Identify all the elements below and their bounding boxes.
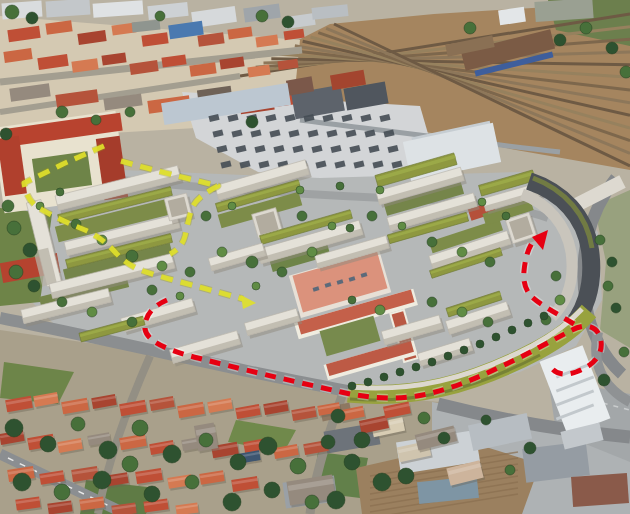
tree: [157, 261, 167, 271]
tree: [57, 297, 67, 307]
tree: [290, 458, 306, 474]
tree: [380, 373, 388, 381]
tree: [223, 493, 241, 511]
tree: [348, 382, 356, 390]
tree: [185, 267, 195, 277]
tree: [427, 297, 437, 307]
tree: [336, 182, 344, 190]
tree: [155, 11, 165, 21]
tree: [7, 221, 21, 235]
tree: [163, 445, 181, 463]
tree: [478, 198, 486, 206]
tree: [122, 456, 138, 472]
tree: [185, 475, 199, 489]
tree: [364, 378, 372, 386]
tree: [176, 292, 184, 300]
tree: [505, 465, 515, 475]
tree: [256, 10, 268, 22]
tree: [348, 296, 356, 304]
tree: [2, 200, 14, 212]
tree: [0, 128, 12, 140]
tree: [508, 326, 516, 334]
tree: [264, 482, 280, 498]
tree: [259, 437, 277, 455]
tree: [87, 307, 97, 317]
tree: [595, 235, 605, 245]
tree: [307, 247, 317, 257]
tree: [427, 237, 437, 247]
screenshot-root: [0, 0, 630, 514]
tree: [375, 305, 385, 315]
tree: [331, 409, 345, 423]
tree: [438, 432, 450, 444]
tree: [297, 211, 307, 221]
tree: [23, 243, 37, 257]
tree: [217, 247, 227, 257]
tree: [502, 212, 510, 220]
tree: [481, 415, 491, 425]
tree: [71, 417, 85, 431]
tree: [13, 473, 31, 491]
tree: [619, 347, 629, 357]
tree: [554, 34, 566, 46]
tree: [354, 432, 370, 448]
tree: [5, 419, 23, 437]
tree: [346, 224, 354, 232]
tree: [457, 247, 467, 257]
tree: [127, 317, 137, 327]
tree: [246, 116, 258, 128]
tree: [376, 186, 384, 194]
landmark-building: [571, 473, 629, 507]
tree: [26, 12, 38, 24]
tree: [201, 211, 211, 221]
tree: [305, 495, 319, 509]
tree: [321, 435, 335, 449]
tree: [132, 420, 148, 436]
tree: [252, 282, 260, 290]
tree: [40, 436, 56, 452]
tree: [524, 442, 536, 454]
tree: [246, 256, 258, 268]
tree: [296, 186, 304, 194]
tree: [9, 265, 23, 279]
tree: [282, 16, 294, 28]
tree: [144, 486, 160, 502]
tree: [620, 66, 630, 78]
tree: [327, 491, 345, 509]
landmark-building: [45, 0, 90, 18]
tree: [540, 312, 548, 320]
tree: [444, 352, 452, 360]
tree: [228, 202, 236, 210]
tree: [464, 22, 476, 34]
tree: [147, 285, 157, 295]
aerial-scene-svg: [0, 0, 630, 514]
tree: [277, 267, 287, 277]
tree: [56, 106, 68, 118]
tree: [598, 374, 610, 386]
tree: [230, 454, 246, 470]
tree: [344, 454, 360, 470]
tree: [398, 222, 406, 230]
tree: [28, 280, 40, 292]
tree: [91, 115, 101, 125]
tree: [373, 473, 391, 491]
tree: [199, 433, 213, 447]
tree: [56, 188, 64, 196]
tree: [412, 363, 420, 371]
tree: [476, 340, 484, 348]
tree: [551, 271, 561, 281]
tree: [125, 107, 135, 117]
tree: [328, 222, 336, 230]
tree: [485, 257, 495, 267]
tree: [580, 22, 592, 34]
tree: [524, 319, 532, 327]
tree: [367, 211, 377, 221]
tree: [418, 412, 430, 424]
tree: [603, 281, 613, 291]
tree: [396, 368, 404, 376]
tree: [460, 346, 468, 354]
tree: [606, 42, 618, 54]
tree: [54, 484, 70, 500]
tree: [428, 358, 436, 366]
tree: [398, 468, 414, 484]
tree: [483, 317, 493, 327]
tree: [99, 441, 117, 459]
tree: [5, 5, 19, 19]
tree: [93, 471, 111, 489]
tree: [555, 295, 565, 305]
aerial-visualization: [0, 0, 630, 514]
tree: [457, 307, 467, 317]
tree: [607, 257, 617, 267]
tree: [611, 303, 621, 313]
tree: [492, 333, 500, 341]
